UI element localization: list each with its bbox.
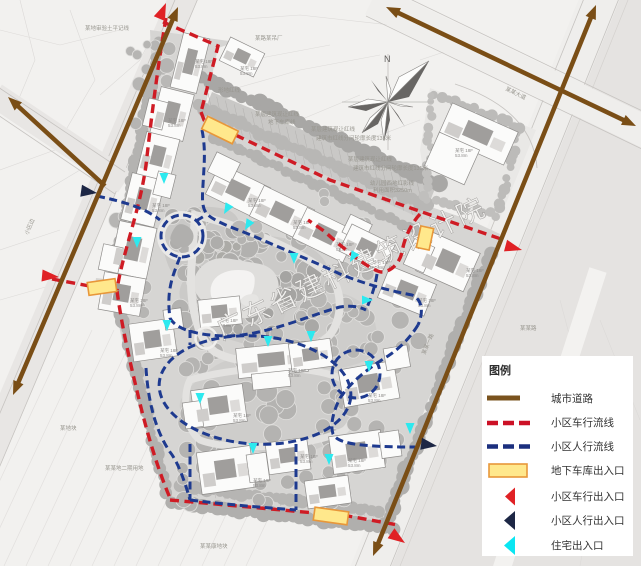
svg-text:地下车库出入口: 地下车库出入口 — [551, 464, 625, 477]
svg-text:某层建筑现让红线: 某层建筑现让红线 — [255, 110, 300, 118]
svg-text:某某路: 某某路 — [520, 324, 537, 332]
svg-text:53.8m: 53.8m — [253, 483, 266, 488]
svg-text:某某康地块: 某某康地块 — [200, 542, 228, 550]
svg-text:小区人行流线: 小区人行流线 — [551, 440, 614, 453]
svg-text:53.8m: 53.8m — [130, 303, 143, 308]
svg-text:53.8m: 53.8m — [160, 353, 173, 358]
svg-text:53.8m: 53.8m — [288, 373, 301, 378]
svg-text:某地块: 某地块 — [60, 424, 77, 432]
svg-text:某某地二期用地: 某某地二期用地 — [105, 464, 144, 472]
svg-text:利用面积3250m: 利用面积3250m — [373, 186, 412, 194]
svg-text:小区车行出入口: 小区车行出入口 — [551, 490, 625, 503]
svg-text:53.8m: 53.8m — [293, 225, 306, 230]
svg-text:建筑市红线分问轮廓长度135米: 建筑市红线分问轮廓长度135米 — [353, 164, 429, 172]
svg-text:建筑市红线分问轮廓长度135米: 建筑市红线分问轮廓长度135米 — [316, 134, 392, 142]
svg-text:53.8m: 53.8m — [300, 459, 313, 464]
svg-text:某层建筑现让红线: 某层建筑现让红线 — [311, 125, 356, 133]
svg-text:某地审验土平记线: 某地审验土平记线 — [85, 24, 130, 32]
svg-text:53.8m: 53.8m — [248, 203, 261, 208]
svg-text:某路某吊厂: 某路某吊厂 — [255, 34, 283, 42]
svg-text:53.8m: 53.8m — [168, 123, 181, 128]
svg-text:53.8m: 53.8m — [466, 273, 479, 278]
svg-text:53.8m: 53.8m — [195, 64, 208, 69]
svg-text:N: N — [384, 54, 391, 64]
svg-text:形地红线: 形地红线 — [218, 86, 241, 94]
svg-text:53.8m: 53.8m — [233, 418, 246, 423]
svg-text:小区人行出入口: 小区人行出入口 — [551, 514, 625, 527]
svg-text:地下车库线: 地下车库线 — [268, 118, 296, 126]
svg-text:53.8m: 53.8m — [240, 71, 253, 76]
svg-text:53.8m: 53.8m — [368, 398, 381, 403]
svg-text:53.8m: 53.8m — [455, 153, 468, 158]
svg-text:住宅出入口: 住宅出入口 — [551, 539, 604, 552]
svg-text:城市道路: 城市道路 — [551, 392, 593, 405]
svg-text:幼儿园西地红影线: 幼儿园西地红影线 — [370, 179, 415, 187]
svg-text:小区车行流线: 小区车行流线 — [551, 416, 614, 429]
svg-text:53.8m: 53.8m — [348, 463, 361, 468]
svg-text:图例: 图例 — [489, 363, 511, 377]
svg-text:53.8m: 53.8m — [152, 208, 165, 213]
svg-text:某层建筑现让红线: 某层建筑现让红线 — [348, 155, 393, 163]
